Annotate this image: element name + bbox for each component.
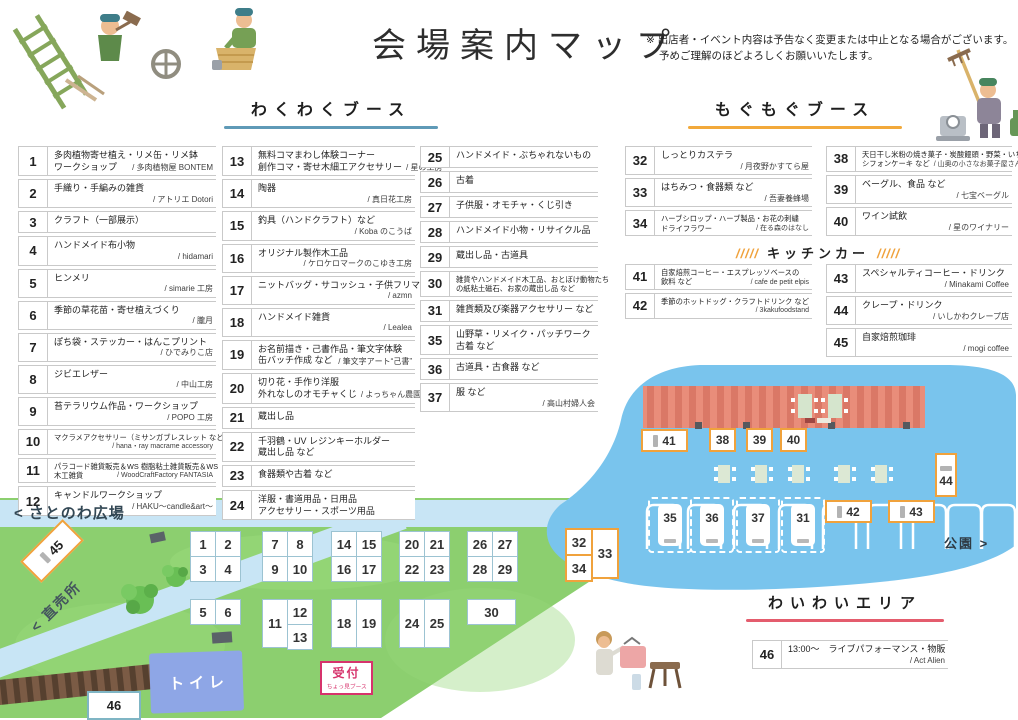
booth-number: 10 [19, 430, 48, 454]
disclaimer-line2: 予めご理解のほどよろしくお願いいたします。 [646, 48, 1014, 64]
map-stall-40: 40 [780, 428, 807, 452]
booth-number: 7 [19, 334, 48, 361]
booth-number: 2 [19, 180, 48, 207]
map-booth-9: 9 [262, 556, 288, 582]
booth-vendor: / 3kakufoodstand [752, 306, 809, 315]
reception-label: 受付 [332, 664, 360, 681]
booth-number: 28 [421, 222, 450, 242]
map-van-35: 35 [658, 504, 682, 546]
booth-number: 44 [827, 297, 856, 324]
disclaimer-line1: ※ 出店者・イベント内容は予告なく変更または中止となる場合がございます。 [646, 32, 1014, 48]
booth-description: 季節のホットドッグ・クラフトドリンク など/ 3kakufoodstand [655, 294, 812, 318]
map-booth-15: 15 [356, 531, 382, 557]
booth-number: 24 [223, 491, 252, 519]
map-booth-16: 16 [331, 556, 357, 582]
map-label-satonowa-hiroba: < さとのわ広場 [14, 502, 125, 523]
booth-number: 41 [626, 265, 655, 289]
booth-item-44: 44クレープ・ドリンク/ いしかわクレープ店 [826, 296, 1012, 325]
booth-description: 服 など/ 高山村婦人会 [450, 384, 598, 411]
kitchen-car-marker [39, 552, 51, 564]
booth-description: ハーブシロップ・ハーブ製品・お花の刺繍ドライフラワー/ 在る森のはなし [655, 211, 812, 235]
kitchen-car-marker [900, 506, 905, 518]
booth-description: 季節の草花苗・寄せ植えづくり/ 朧月 [48, 302, 216, 329]
booth-description: 蔵出し品 [252, 408, 415, 428]
booth-item-28: 28ハンドメイド小物・リサイクル品 [420, 221, 598, 243]
booth-item-20: 20切り花・手作り洋服外れなしのオモチャくじ/ よっちゃん農園 [222, 373, 415, 403]
map-parking-slot: 36 [690, 497, 734, 553]
booth-item-45: 45自家焙煎珈琲/ mogi coffee [826, 328, 1012, 357]
section-waiwai: わいわいエリア [746, 592, 944, 622]
map-label-park: 公園 > [944, 533, 989, 552]
booth-vendor: / 吾妻養蜂場 [761, 194, 809, 204]
booth-description: ヒンメリ/ simarie 工房 [48, 270, 216, 297]
map-booth-4: 4 [215, 556, 241, 582]
section-kitchencar: /////キッチンカー///// [622, 243, 1014, 262]
booth-item-7: 7ぽち袋・ステッカー・はんこプリント/ ひでみりこ店 [18, 333, 216, 362]
booth-description: 陶器/ 真日花工房 [252, 180, 415, 207]
page-title: 会場案内マップ [372, 18, 672, 67]
booth-vendor: / POPO 工房 [163, 413, 213, 423]
van-windshield [664, 539, 676, 543]
toilet-label: トイレ [164, 670, 230, 693]
booth-vendor: / 七宝ベーグル [953, 191, 1009, 201]
map-booth-7: 7 [262, 531, 288, 557]
booth-item-2: 2手織り・手編みの雑貨/ アトリエ Dotori [18, 179, 216, 208]
kitchen-car-marker [653, 435, 658, 447]
booth-description: ぽち袋・ステッカー・はんこプリント/ ひでみりこ店 [48, 334, 216, 361]
map-booth-34: 34 [565, 554, 593, 582]
booth-vendor: / simarie 工房 [161, 284, 213, 294]
map-stall-44: 44 [935, 453, 957, 497]
booth-number: 32 [626, 147, 655, 174]
booth-item-40: 40ワイン試飲/ 星のワイナリー [826, 207, 1012, 236]
booth-number: 14 [223, 180, 252, 207]
booth-item-25: 25ハンドメイド・ぶちゃれないもの [420, 146, 598, 168]
kitchencar-list-column-1: 41自家焙煎コーヒー・エスプレッソベースの飲料 など/ cafe de peti… [625, 264, 812, 322]
booth-description: 山野草・リメイク・パッチワーク古着 など [450, 326, 598, 354]
booth-number: 30 [421, 272, 450, 296]
booth-item-43: 43スペシャルティコーヒー・ドリンク/ Minakami Coffee [826, 264, 1012, 293]
map-parking-slot: 35 [648, 497, 692, 553]
booth-description: 釣具（ハンドクラフト）など/ Koba のこうば [252, 212, 415, 239]
booth-item-17: 17ニットバッグ・サコッシュ・子供フリマ/ azmn [222, 276, 415, 305]
map-van-31: 31 [791, 504, 815, 546]
van-windshield [752, 539, 764, 543]
booth-description: ハンドメイド雑貨/ Lealea [252, 309, 415, 336]
slash-decoration: ///// [736, 246, 759, 261]
map-booth-17: 17 [356, 556, 382, 582]
booth-number: 19 [223, 341, 252, 369]
booth-vendor: / ケロケロマークのこゆき工房 [300, 259, 412, 269]
section-mogumogu: もぐもぐブース [688, 96, 902, 129]
booth-description: 洋服・書道用品・日用品アクセサリー・スポーツ用品 [252, 491, 415, 519]
booth-number: 27 [421, 197, 450, 217]
booth-number: 18 [223, 309, 252, 336]
map-booth-28: 28 [467, 556, 493, 582]
booth-vendor: / 山奥の小さなお菓子屋さん [930, 160, 1018, 169]
booth-item-46: 4613:00〜 ライブパフォーマンス・物販/ Act Alien [752, 640, 948, 669]
booth-item-42: 42季節のホットドッグ・クラフトドリンク など/ 3kakufoodstand [625, 293, 812, 319]
map-stall-41: 41 [641, 429, 688, 452]
booth-description: 雑貨やハンドメイド木工品、おとぼけ動物たちの紙粘土磁石、お家の蔵出し品 など [450, 272, 598, 296]
booth-item-5: 5ヒンメリ/ simarie 工房 [18, 269, 216, 298]
booth-vendor: / hana・ray macrame accessory [108, 442, 213, 451]
booth-description: 切り花・手作り洋服外れなしのオモチャくじ/ よっちゃん農園 [252, 374, 415, 402]
booth-number: 46 [753, 641, 782, 668]
map-booth-grid: 111213 [262, 599, 313, 650]
map-booth-25: 25 [424, 599, 450, 648]
map-booth-23: 23 [424, 556, 450, 582]
booth-vendor: / Act Alien [906, 656, 945, 666]
booth-description: 古道具・古食器 など [450, 359, 598, 379]
booth-item-31: 31雑貨類及び楽器アクセサリー など [420, 300, 598, 322]
map-booth-14: 14 [331, 531, 357, 557]
booth-number: 8 [19, 366, 48, 393]
booth-item-37: 37服 など/ 高山村婦人会 [420, 383, 598, 412]
booth-description: 手織り・手編みの雑貨/ アトリエ Dotori [48, 180, 216, 207]
booth-item-18: 18ハンドメイド雑貨/ Lealea [222, 308, 415, 337]
map-booth-grid: 79810 [262, 531, 313, 582]
map-booth-18: 18 [331, 599, 357, 648]
booth-description: ハンドメイド・ぶちゃれないもの [450, 147, 598, 167]
map-stall-43: 43 [888, 500, 935, 523]
booth-description: ベーグル、食品 など/ 七宝ベーグル [856, 176, 1012, 203]
booth-description: しっとりカステラ/ 月夜野かすてら屋 [655, 147, 812, 174]
booth-item-10: 10マクラメアクセサリー（ミサンガブレスレット など）/ hana・ray ma… [18, 429, 216, 455]
map-van-36: 36 [700, 504, 724, 546]
booth-vendor: / 中山工房 [173, 380, 213, 390]
booth-description: スペシャルティコーヒー・ドリンク/ Minakami Coffee [856, 265, 1012, 292]
section-mogumogu-underline [688, 126, 902, 129]
section-waiwai-title: わいわいエリア [746, 592, 944, 613]
section-mogumogu-title: もぐもぐブース [688, 96, 902, 120]
booth-vendor: / ひでみりこ店 [157, 348, 213, 358]
booth-number: 5 [19, 270, 48, 297]
booth-vendor: / mogi coffee [959, 344, 1009, 354]
booth-item-9: 9苔テラリウム作品・ワークショップ/ POPO 工房 [18, 397, 216, 426]
disclaimer: ※ 出店者・イベント内容は予告なく変更または中止となる場合がございます。 予めご… [646, 32, 1014, 65]
bench [212, 631, 233, 643]
booth-description: ハンドメイド布小物/ hidamari [48, 237, 216, 264]
booth-number: 39 [827, 176, 856, 203]
wakuwaku-list-column-1: 1多肉植物寄せ植え・リメ缶・リメ鉢ワークショップ/ 多肉植物屋 BONTEM2手… [18, 146, 216, 519]
booth-description: ワイン試飲/ 星のワイナリー [856, 208, 1012, 235]
booth-vendor: / 筆文字アート“己書” [334, 357, 412, 367]
map-stall-46-number: 46 [107, 698, 121, 713]
booth-description: パラコード雑貨販売＆WS 樹脂粘土雑貨販売＆WS木工雑貨/ WoodCraftF… [48, 459, 216, 483]
booth-number: 22 [223, 433, 252, 461]
reception-sublabel: ちょっ見ブース [326, 683, 366, 691]
booth-number: 3 [19, 212, 48, 232]
booth-item-29: 29蔵出し品・古道具 [420, 246, 598, 268]
booth-description: クレープ・ドリンク/ いしかわクレープ店 [856, 297, 1012, 324]
booth-number: 25 [421, 147, 450, 167]
booth-description: 無料コマまわし体験コーナー創作コマ・寄せ木細工アクセサリー/ 星の工房 [252, 147, 415, 175]
section-waiwai-underline [746, 619, 944, 622]
map-stall-45-number: 45 [45, 537, 66, 558]
map-booth-24: 24 [399, 599, 425, 648]
booth-description: 雑貨類及び楽器アクセサリー など [450, 301, 598, 321]
booth-item-27: 27子供服・オモチャ・くじ引き [420, 196, 598, 218]
booth-item-19: 19お名前描き・己書作品・筆文字体験缶バッチ作成 など/ 筆文字アート“己書” [222, 340, 415, 370]
mogumogu-list-column-2: 38天日干し米粉の焼き菓子・炭酸饅頭・野菜・いちごのムースシフォンケーキ など/… [826, 146, 1012, 239]
booth-number: 36 [421, 359, 450, 379]
booth-description: 苔テラリウム作品・ワークショップ/ POPO 工房 [48, 398, 216, 425]
booth-item-39: 39ベーグル、食品 など/ 七宝ベーグル [826, 175, 1012, 204]
map-booth-3: 3 [190, 556, 216, 582]
map-booth-29: 29 [492, 556, 518, 582]
map-booth-8: 8 [287, 531, 313, 557]
booth-vendor: / アトリエ Dotori [149, 195, 213, 205]
booth-description: オリジナル製作木工品/ ケロケロマークのこゆき工房 [252, 245, 415, 272]
map-booth-11: 11 [262, 599, 288, 648]
booth-item-34: 34ハーブシロップ・ハーブ製品・お花の刺繍ドライフラワー/ 在る森のはなし [625, 210, 812, 236]
booth-description: ジビエレザー/ 中山工房 [48, 366, 216, 393]
booth-vendor: / Lealea [380, 323, 412, 333]
booth-description: 天日干し米粉の焼き菓子・炭酸饅頭・野菜・いちごのムースシフォンケーキ など/ 山… [856, 147, 1012, 171]
booth-description: 千羽鶴・UV レジンキーホルダー蔵出し品 など [252, 433, 415, 461]
section-wakuwaku: わくわくブース [224, 96, 438, 129]
stage-building [643, 386, 925, 429]
map-booth-grid: 323433 [565, 528, 619, 582]
map-van-37: 37 [746, 504, 770, 546]
booth-item-6: 6季節の草花苗・寄せ植えづくり/ 朧月 [18, 301, 216, 330]
booth-item-35: 35山野草・リメイク・パッチワーク古着 など [420, 325, 598, 355]
map-booth-grid: 56 [190, 599, 241, 625]
booth-number: 34 [626, 211, 655, 235]
map-toilet-building: トイレ [149, 650, 244, 713]
booth-item-38: 38天日干し米粉の焼き菓子・炭酸饅頭・野菜・いちごのムースシフォンケーキ など/… [826, 146, 1012, 172]
booth-number: 40 [827, 208, 856, 235]
booth-item-24: 24洋服・書道用品・日用品アクセサリー・スポーツ用品 [222, 490, 415, 520]
map-booth-30: 30 [467, 599, 516, 625]
booth-item-23: 23食器類や古着 など [222, 465, 415, 487]
kitchencar-list-column-2: 43スペシャルティコーヒー・ドリンク/ Minakami Coffee44クレー… [826, 264, 1012, 360]
booth-vendor: / よっちゃん農園 [357, 390, 421, 400]
mogumogu-list-column-1: 32しっとりカステラ/ 月夜野かすてら屋33はちみつ・食器類 など/ 吾妻養蜂場… [625, 146, 812, 239]
map-booth-33: 33 [591, 528, 619, 579]
booth-number: 21 [223, 408, 252, 428]
booth-number: 9 [19, 398, 48, 425]
map-booth-10: 10 [287, 556, 313, 582]
map-booth-32: 32 [565, 528, 593, 556]
booth-description: お名前描き・己書作品・筆文字体験缶バッチ作成 など/ 筆文字アート“己書” [252, 341, 415, 369]
booth-description: ハンドメイド小物・リサイクル品 [450, 222, 598, 242]
booth-number: 43 [827, 265, 856, 292]
booth-item-26: 26古着 [420, 171, 598, 193]
booth-item-3: 3クラフト（一部展示） [18, 211, 216, 233]
map-parking-slot: 37 [736, 497, 780, 553]
map-reception-booth: 受付 ちょっ見ブース [320, 661, 373, 695]
booth-number: 45 [827, 329, 856, 356]
booth-number: 6 [19, 302, 48, 329]
section-kitchencar-title: キッチンカー [767, 246, 869, 261]
booth-description: マクラメアクセサリー（ミサンガブレスレット など）/ hana・ray macr… [48, 430, 216, 454]
map-booth-27: 27 [492, 531, 518, 557]
booth-number: 26 [421, 172, 450, 192]
booth-number: 42 [626, 294, 655, 318]
booth-number: 31 [421, 301, 450, 321]
map-booth-19: 19 [356, 599, 382, 648]
map-booth-grid: 1819 [331, 599, 382, 648]
van-windshield [706, 539, 718, 543]
map-booth-26: 26 [467, 531, 493, 557]
deco-basket-illustration [212, 8, 256, 70]
booth-item-33: 33はちみつ・食器類 など/ 吾妻養蜂場 [625, 178, 812, 207]
booth-description: 蔵出し品・古道具 [450, 247, 598, 267]
deco-tools-illustration [12, 11, 179, 110]
slash-decoration: ///// [877, 246, 900, 261]
map-stall-39: 39 [746, 428, 773, 452]
booth-number: 16 [223, 245, 252, 272]
booth-number: 1 [19, 147, 48, 175]
booth-description: クラフト（一部展示） [48, 212, 216, 232]
map-booth-grid: 26282729 [467, 531, 518, 582]
booth-item-36: 36古道具・古食器 など [420, 358, 598, 380]
section-wakuwaku-underline [224, 126, 438, 129]
booth-vendor: / 在る森のはなし [752, 224, 809, 233]
booth-vendor: / 月夜野かすてら屋 [736, 162, 809, 172]
booth-vendor: / WoodCraftFactory FANTASIA [113, 471, 213, 480]
booth-description: 古着 [450, 172, 598, 192]
booth-number: 20 [223, 374, 252, 402]
booth-vendor: / HAKU〜candle&art〜 [128, 502, 213, 512]
booth-vendor: / Koba のこうば [351, 227, 412, 237]
booth-vendor: / 星のワイナリー [945, 223, 1009, 233]
map-booth-grid: 30 [467, 599, 516, 625]
booth-vendor: / いしかわクレープ店 [929, 312, 1009, 322]
map-parking-slot: 31 [781, 497, 825, 553]
booth-number: 37 [421, 384, 450, 411]
map-booth-1: 1 [190, 531, 216, 557]
booth-item-1: 1多肉植物寄せ植え・リメ缶・リメ鉢ワークショップ/ 多肉植物屋 BONTEM [18, 146, 216, 176]
booth-item-15: 15釣具（ハンドクラフト）など/ Koba のこうば [222, 211, 415, 240]
map-booth-21: 21 [424, 531, 450, 557]
booth-item-8: 8ジビエレザー/ 中山工房 [18, 365, 216, 394]
map-booth-grid: 2425 [399, 599, 450, 648]
map-booth-grid: 20222123 [399, 531, 450, 582]
booth-description: はちみつ・食器類 など/ 吾妻養蜂場 [655, 179, 812, 206]
map-stall-46: 46 [87, 691, 141, 720]
map-booth-12: 12 [287, 599, 313, 625]
wakuwaku-list-column-3: 25ハンドメイド・ぶちゃれないもの26古着27子供服・オモチャ・くじ引き28ハン… [420, 146, 598, 415]
map-booth-22: 22 [399, 556, 425, 582]
booth-vendor: / 高山村婦人会 [539, 399, 595, 409]
booth-item-21: 21蔵出し品 [222, 407, 415, 429]
map-booth-20: 20 [399, 531, 425, 557]
booth-item-11: 11パラコード雑貨販売＆WS 樹脂粘土雑貨販売＆WS木工雑貨/ WoodCraf… [18, 458, 216, 484]
booth-number: 23 [223, 466, 252, 486]
booth-description: 子供服・オモチャ・くじ引き [450, 197, 598, 217]
booth-vendor: / azmn [384, 291, 412, 301]
map-stall-38: 38 [709, 428, 736, 452]
booth-number: 35 [421, 326, 450, 354]
map-booth-2: 2 [215, 531, 241, 557]
booth-number: 11 [19, 459, 48, 483]
booth-item-22: 22千羽鶴・UV レジンキーホルダー蔵出し品 など [222, 432, 415, 462]
booth-vendor: / 真日花工房 [364, 195, 412, 205]
map-booth-5: 5 [190, 599, 216, 625]
booth-description: 食器類や古着 など [252, 466, 415, 486]
booth-number: 4 [19, 237, 48, 264]
booth-item-30: 30雑貨やハンドメイド木工品、おとぼけ動物たちの紙粘土磁石、お家の蔵出し品 など [420, 271, 598, 297]
map-booth-6: 6 [215, 599, 241, 625]
booth-description: 自家焙煎コーヒー・エスプレッソベースの飲料 など/ cafe de petit … [655, 265, 812, 289]
booth-vendor: / Minakami Coffee [941, 280, 1009, 290]
booth-number: 29 [421, 247, 450, 267]
wakuwaku-list-column-2: 13無料コマまわし体験コーナー創作コマ・寄せ木細工アクセサリー/ 星の工房14陶… [222, 146, 415, 523]
booth-number: 17 [223, 277, 252, 304]
map-stall-42: 42 [825, 500, 872, 523]
kitchen-car-marker [940, 466, 952, 471]
booth-vendor: / 朧月 [189, 316, 213, 326]
waiwai-list: 4613:00〜 ライブパフォーマンス・物販/ Act Alien [752, 640, 948, 672]
booth-vendor: / cafe de petit elpis [747, 278, 809, 287]
booth-item-13: 13無料コマまわし体験コーナー創作コマ・寄せ木細工アクセサリー/ 星の工房 [222, 146, 415, 176]
booth-number: 33 [626, 179, 655, 206]
booth-item-4: 4ハンドメイド布小物/ hidamari [18, 236, 216, 265]
booth-description: ニットバッグ・サコッシュ・子供フリマ/ azmn [252, 277, 415, 304]
van-windshield [797, 539, 809, 543]
booth-description: 多肉植物寄せ植え・リメ缶・リメ鉢ワークショップ/ 多肉植物屋 BONTEM [48, 147, 216, 175]
booth-item-14: 14陶器/ 真日花工房 [222, 179, 415, 208]
deco-market-illustration [596, 631, 680, 690]
booth-description: 13:00〜 ライブパフォーマンス・物販/ Act Alien [782, 641, 948, 668]
kitchen-car-marker [837, 506, 842, 518]
booth-number: 13 [223, 147, 252, 175]
map-booth-grid: 14161517 [331, 531, 382, 582]
map-booth-13: 13 [287, 624, 313, 650]
booth-description: 自家焙煎珈琲/ mogi coffee [856, 329, 1012, 356]
booth-number: 15 [223, 212, 252, 239]
booth-item-41: 41自家焙煎コーヒー・エスプレッソベースの飲料 など/ cafe de peti… [625, 264, 812, 290]
booth-item-16: 16オリジナル製作木工品/ ケロケロマークのこゆき工房 [222, 244, 415, 273]
section-wakuwaku-title: わくわくブース [224, 96, 438, 120]
booth-vendor: / 多肉植物屋 BONTEM [128, 163, 213, 173]
booth-vendor: / hidamari [174, 252, 213, 262]
booth-item-32: 32しっとりカステラ/ 月夜野かすてら屋 [625, 146, 812, 175]
map-booth-grid: 1324 [190, 531, 241, 582]
booth-number: 38 [827, 147, 856, 171]
